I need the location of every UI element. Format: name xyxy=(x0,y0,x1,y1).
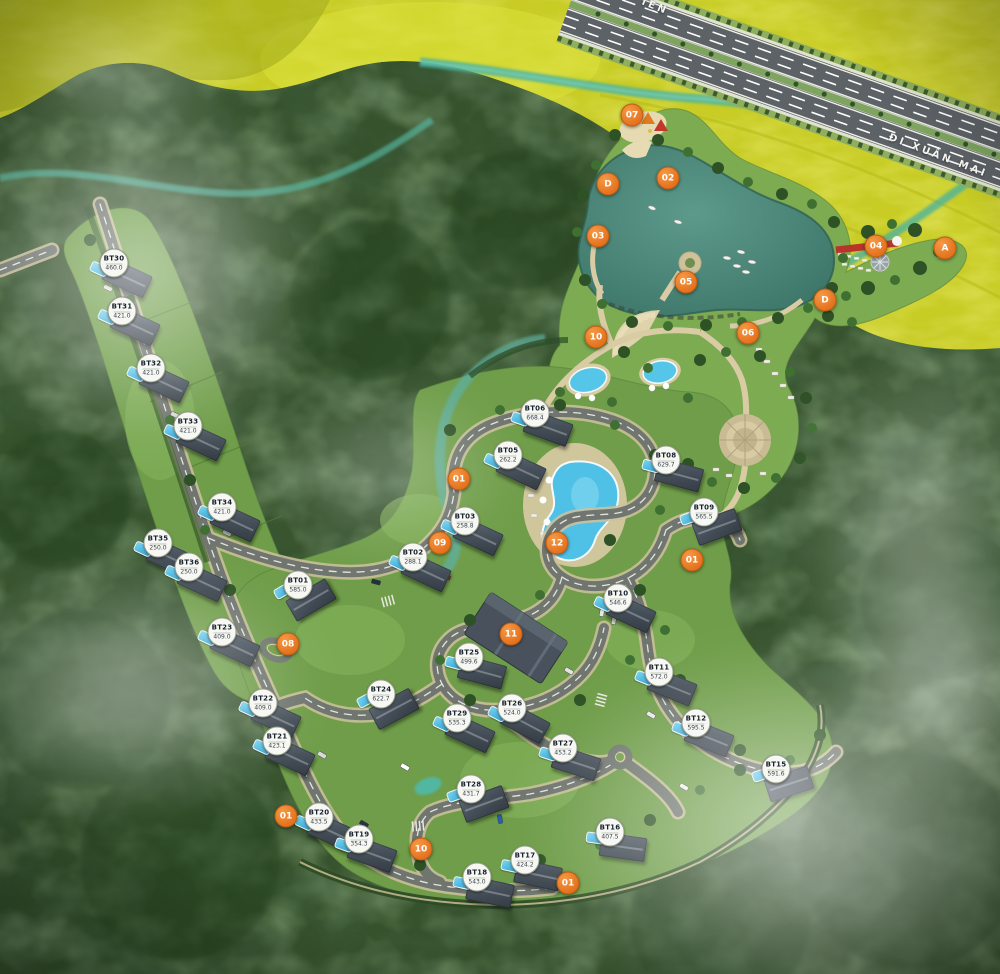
masterplan-map: BT30460.0BT31421.0BT32421.0BT33421.0BT34… xyxy=(0,0,1000,974)
map-svg xyxy=(0,0,1000,974)
vignette xyxy=(0,0,1000,974)
